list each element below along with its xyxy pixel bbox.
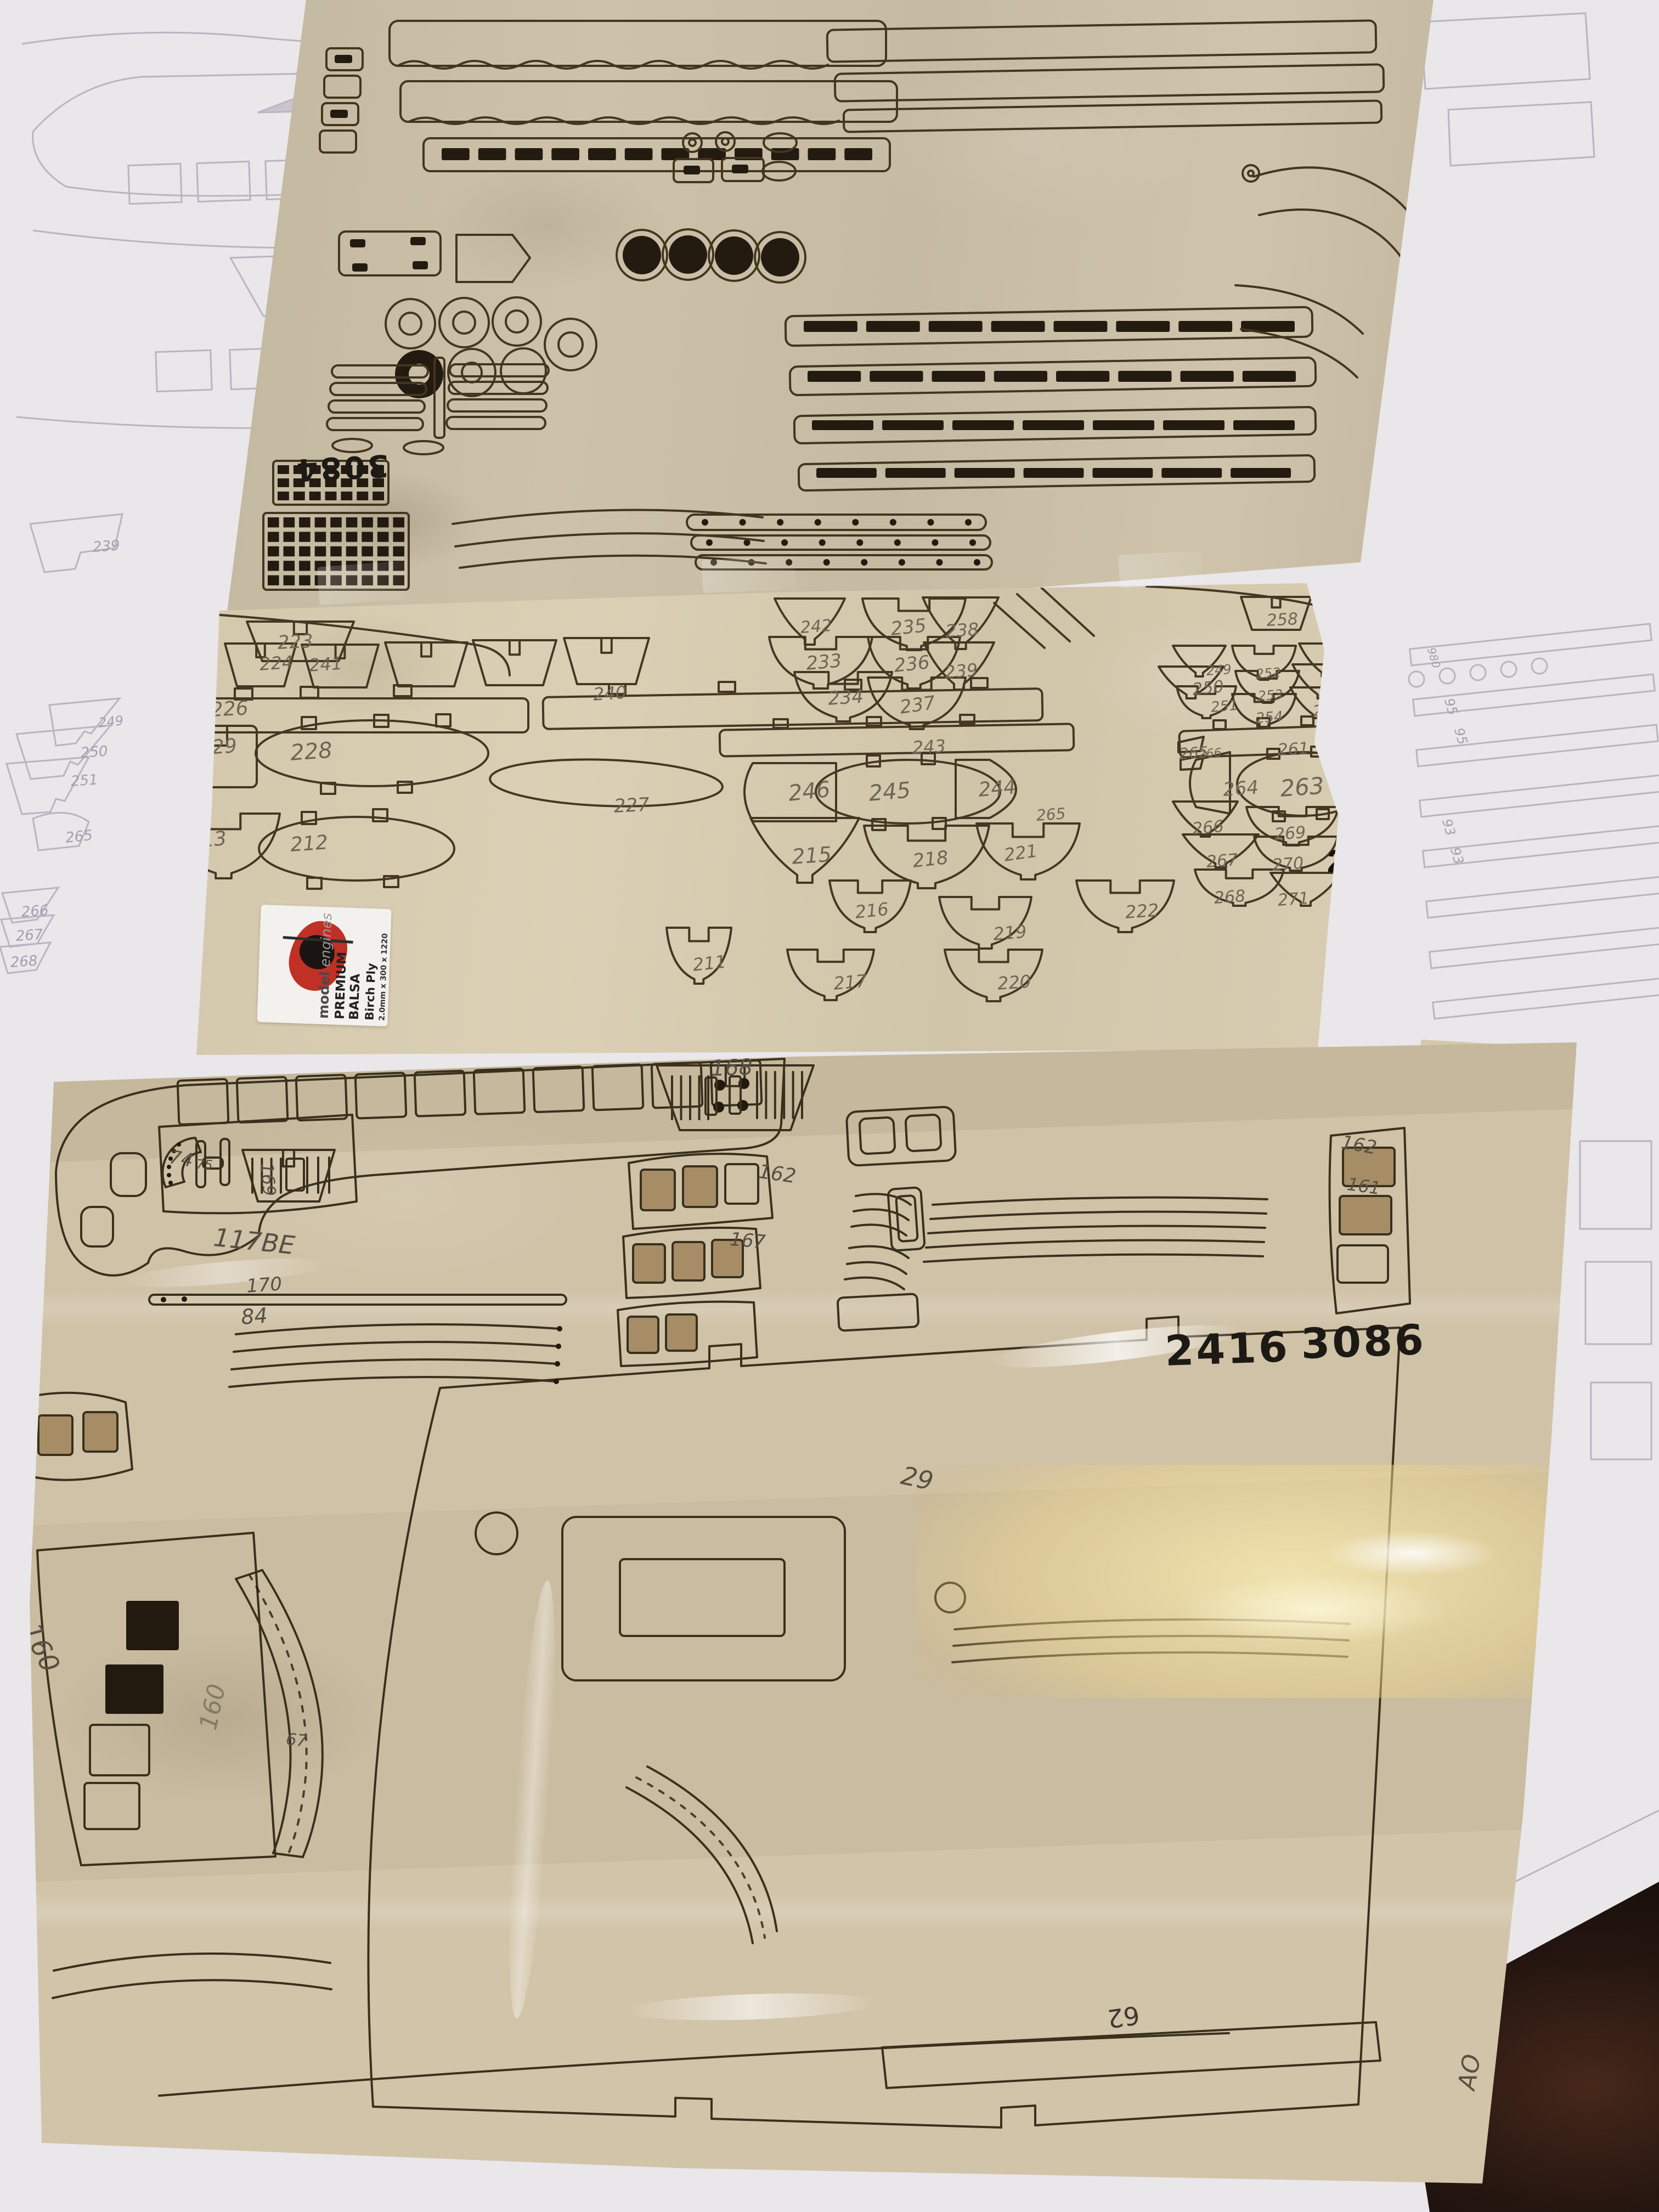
sticker-brand: model engines xyxy=(315,901,335,1019)
photo-of-model-kit-sheets: { "photo": { "subject": "laser-cut woode… xyxy=(0,0,1659,2212)
sticker-line-premium-balsa: PREMIUM BALSA xyxy=(333,902,365,1020)
label-270: 270 xyxy=(1272,855,1304,874)
label-266: 266 xyxy=(1192,819,1224,838)
label-226: 226 xyxy=(210,698,249,720)
label-243: 243 xyxy=(912,737,946,757)
label-162: 162 xyxy=(1340,1133,1378,1158)
label-271: 271 xyxy=(1277,890,1310,909)
product-sticker: model engines PREMIUM BALSA Birch Ply 2.… xyxy=(257,905,391,1026)
label-218: 218 xyxy=(912,848,949,871)
label-211: 211 xyxy=(692,953,727,974)
label-264: 264 xyxy=(1222,778,1259,799)
label-212: 212 xyxy=(290,833,329,855)
label-168: 168 xyxy=(710,1056,753,1080)
label-95: 95 xyxy=(1442,697,1459,716)
label-234: 234 xyxy=(827,687,864,708)
label-219: 219 xyxy=(992,923,1028,943)
label-237: 237 xyxy=(899,693,936,717)
label-227: 227 xyxy=(613,795,650,816)
label-2416: 2416 xyxy=(1164,1326,1290,1372)
label-75: 75 xyxy=(195,1158,213,1172)
label-258: 258 xyxy=(1266,611,1299,629)
label-222: 222 xyxy=(1125,901,1159,921)
label-238: 238 xyxy=(945,620,979,640)
label-251: 251 xyxy=(1210,698,1239,715)
label-93: 93 xyxy=(1448,846,1465,866)
label-250: 250 xyxy=(1192,679,1224,698)
label-AO: AO xyxy=(1455,2052,1485,2091)
label-216: 216 xyxy=(854,900,889,921)
label-245: 245 xyxy=(868,779,912,805)
sticker-line-birch-ply: Birch Ply xyxy=(363,903,380,1021)
label-240: 240 xyxy=(592,684,627,703)
label-265: 265 xyxy=(65,828,93,845)
label-84: 84 xyxy=(240,1305,268,1328)
label-239: 239 xyxy=(92,539,120,555)
label-3086: 3086 xyxy=(1300,1319,1426,1365)
plywood-sheet-middle-2409: 2232242412402262302292282142142132122272… xyxy=(137,579,1404,1064)
label-215: 215 xyxy=(791,844,832,867)
label-62: 62 xyxy=(1106,2002,1141,2032)
label-223: 223 xyxy=(277,632,314,652)
label-268: 268 xyxy=(10,954,38,970)
label-95: 95 xyxy=(1452,726,1469,746)
label-217: 217 xyxy=(833,972,868,992)
label-161: 161 xyxy=(1346,1175,1382,1197)
label-242: 242 xyxy=(800,618,832,636)
label-250: 250 xyxy=(80,744,108,760)
label-246: 246 xyxy=(787,778,831,805)
label-244: 244 xyxy=(978,777,1017,800)
label-93: 93 xyxy=(1440,817,1457,837)
label-3084: 3084 xyxy=(294,449,390,485)
label-249: 249 xyxy=(98,714,124,730)
label-266: 266 xyxy=(1198,747,1222,761)
sticker-brand-word1: model xyxy=(315,971,333,1019)
label-233: 233 xyxy=(805,651,843,673)
clear-tape xyxy=(702,557,796,593)
label-267: 267 xyxy=(15,928,43,944)
label-74: 74 xyxy=(168,1148,195,1170)
plywood-sheet-bottom-2416-3086: 1681621671621617475169117BE1708429160160… xyxy=(22,1031,1602,2208)
label-265: 265 xyxy=(1036,806,1066,823)
label-169: 169 xyxy=(258,1162,278,1197)
label-170: 170 xyxy=(246,1274,283,1295)
label-261: 261 xyxy=(1277,741,1310,759)
label-252: 252 xyxy=(1255,666,1281,681)
label-253: 253 xyxy=(1257,688,1283,703)
label-263: 263 xyxy=(1279,774,1325,800)
bottom-sheet-labels: 1681621671621617475169117BE1708429160160… xyxy=(22,1031,1602,2208)
label-29: 29 xyxy=(899,1463,935,1494)
label-221: 221 xyxy=(1003,842,1039,864)
label-220: 220 xyxy=(997,973,1031,992)
label-235: 235 xyxy=(890,616,927,639)
label-980: 980 xyxy=(1426,646,1442,669)
clear-tape xyxy=(317,561,407,606)
clear-tape xyxy=(1119,551,1203,588)
label-228: 228 xyxy=(290,740,333,764)
label-160: 160 xyxy=(196,1682,229,1732)
label-224: 224 xyxy=(259,653,294,673)
label-236: 236 xyxy=(893,653,930,675)
label-239: 239 xyxy=(944,661,979,681)
sticker-brand-word2: engines xyxy=(317,913,335,967)
label-269: 269 xyxy=(1274,825,1306,843)
label-162: 162 xyxy=(757,1162,797,1187)
label-117BE: 117BE xyxy=(212,1224,296,1258)
label-167: 167 xyxy=(729,1230,766,1252)
label-266: 266 xyxy=(21,904,49,919)
label-249: 249 xyxy=(1206,663,1232,678)
label-267: 267 xyxy=(1206,852,1238,871)
label-254: 254 xyxy=(1255,710,1283,726)
label-67: 67 xyxy=(285,1731,308,1750)
label-251: 251 xyxy=(70,773,98,789)
label-268: 268 xyxy=(1214,888,1246,907)
label-241: 241 xyxy=(308,654,343,674)
